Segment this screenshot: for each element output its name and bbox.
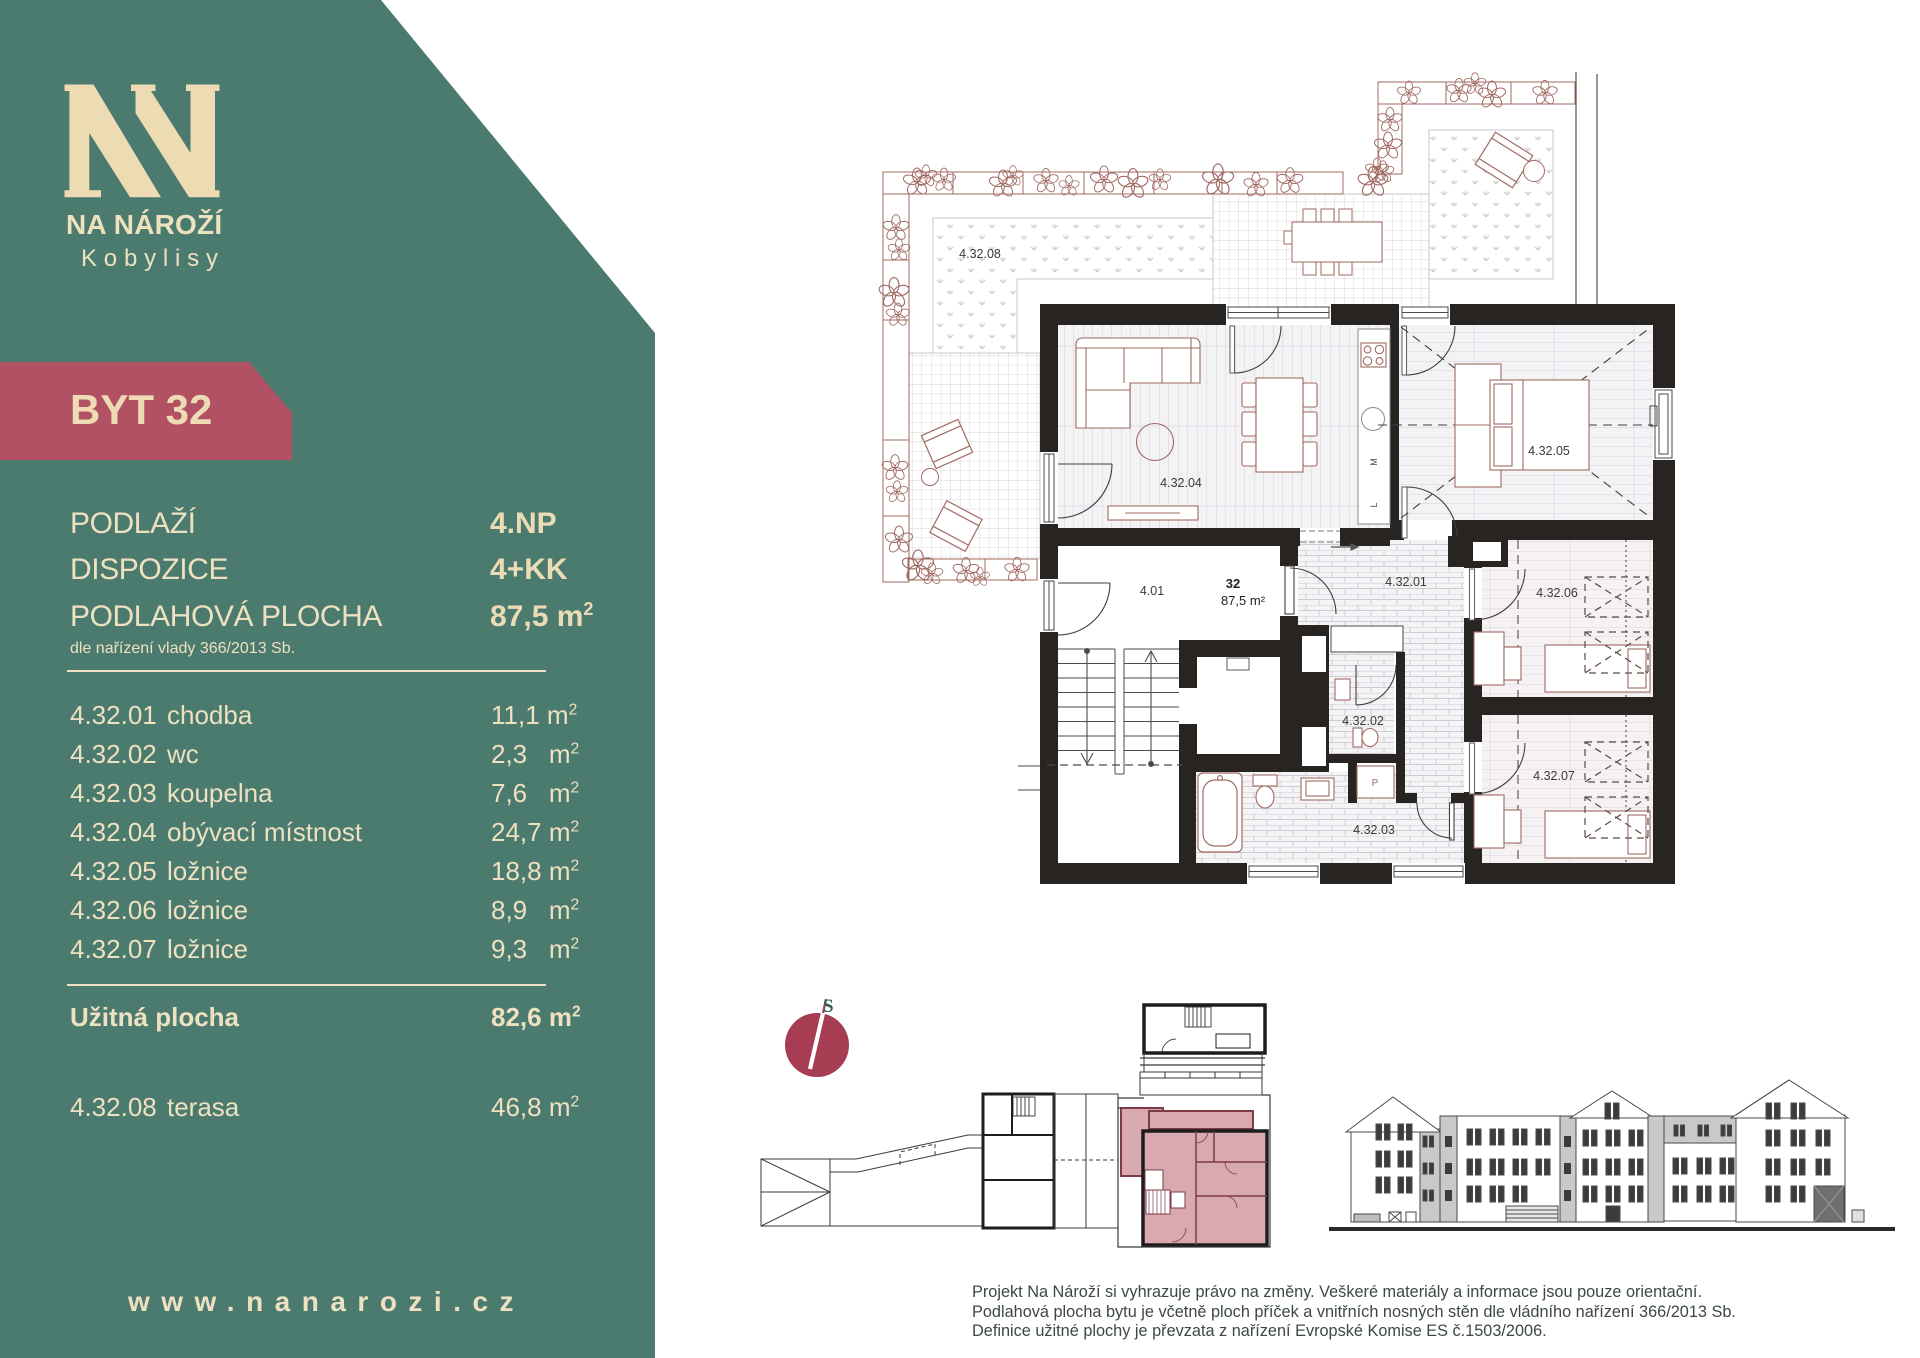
svg-text:S: S [823, 996, 834, 1017]
svg-text:4.32.03: 4.32.03 [1353, 823, 1395, 837]
svg-text:4.32.02: 4.32.02 [1342, 714, 1384, 728]
svg-text:4.01: 4.01 [1140, 584, 1164, 598]
svg-text:4.32.01: 4.32.01 [1385, 575, 1427, 589]
svg-text:P: P [1372, 778, 1379, 789]
svg-text:M: M [1369, 458, 1379, 466]
svg-text:4.32.06: 4.32.06 [1536, 586, 1578, 600]
svg-text:4.32.04: 4.32.04 [1160, 476, 1202, 490]
svg-text:87,5 m²: 87,5 m² [1221, 593, 1266, 608]
svg-text:32: 32 [1226, 576, 1240, 591]
svg-text:L: L [1369, 502, 1379, 507]
svg-text:4.32.07: 4.32.07 [1533, 769, 1575, 783]
svg-text:4.32.05: 4.32.05 [1528, 444, 1570, 458]
svg-text:4.32.08: 4.32.08 [959, 247, 1001, 261]
